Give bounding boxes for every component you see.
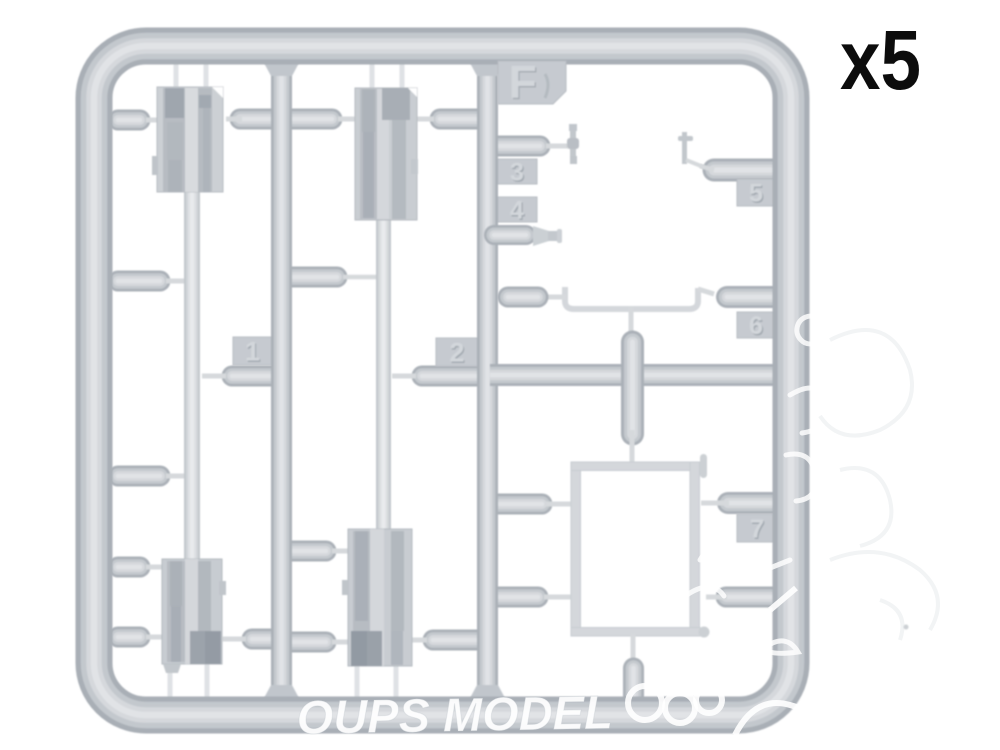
svg-text:7: 7 — [750, 513, 764, 543]
svg-text:OUPS MODEL: OUPS MODEL — [296, 685, 613, 744]
svg-text:2: 2 — [449, 338, 464, 368]
svg-text:6: 6 — [749, 312, 763, 340]
svg-text:4: 4 — [510, 197, 524, 225]
svg-text:x5: x5 — [840, 13, 921, 107]
svg-text:F: F — [509, 56, 537, 108]
svg-text:3: 3 — [510, 159, 524, 187]
svg-text:5: 5 — [749, 180, 763, 208]
svg-text:1: 1 — [245, 337, 260, 367]
